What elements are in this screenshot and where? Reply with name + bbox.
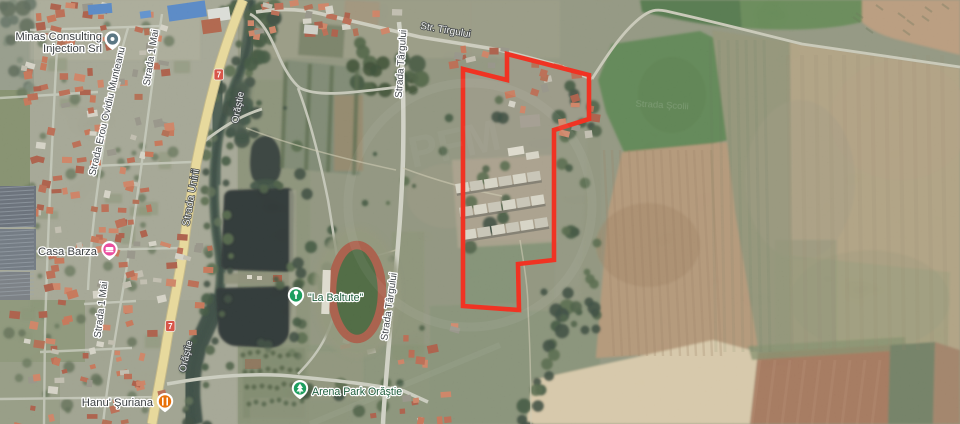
svg-text:Casa Barza: Casa Barza bbox=[38, 246, 98, 258]
svg-text:Hanu' Şuriana: Hanu' Şuriana bbox=[82, 397, 154, 409]
svg-text:7: 7 bbox=[217, 71, 222, 80]
svg-text:7: 7 bbox=[168, 322, 173, 331]
svg-text:Minas Consulting: Minas Consulting bbox=[15, 31, 102, 43]
svg-text:Arena Park Orăştie: Arena Park Orăştie bbox=[312, 386, 402, 398]
svg-text:Injection Srl: Injection Srl bbox=[43, 43, 102, 55]
svg-text:"La Baltute": "La Baltute" bbox=[308, 292, 363, 304]
